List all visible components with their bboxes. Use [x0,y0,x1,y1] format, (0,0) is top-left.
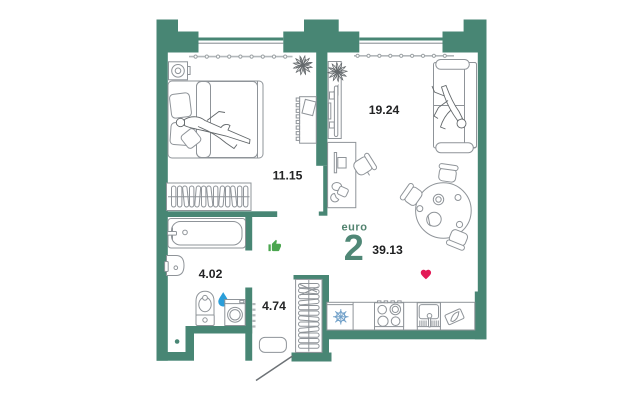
svg-text:11.15: 11.15 [273,169,303,183]
svg-text:4.02: 4.02 [199,267,223,281]
svg-text:4.74: 4.74 [262,299,286,313]
svg-text:2: 2 [344,227,364,268]
svg-text:19.24: 19.24 [369,103,400,117]
svg-text:39.13: 39.13 [372,243,403,257]
